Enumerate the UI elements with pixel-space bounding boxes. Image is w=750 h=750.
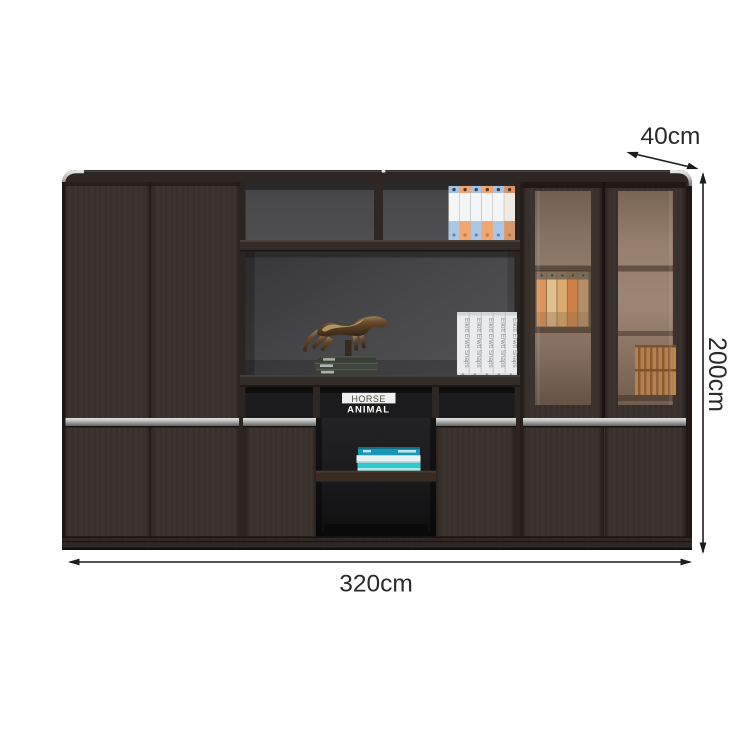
svg-text:Eliott Erwtt Snaps: Eliott Erwtt Snaps [487,318,494,368]
svg-text:40cm: 40cm [641,123,701,150]
svg-text:Eliott Erwtt Snaps: Eliott Erwtt Snaps [463,318,470,368]
svg-text:ANIMAL: ANIMAL [347,405,390,416]
svg-text:Eliott Erwtt Snaps: Eliott Erwtt Snaps [499,318,506,368]
svg-text:320cm: 320cm [339,571,413,598]
svg-text:Eliott Erwtt Snaps: Eliott Erwtt Snaps [511,318,518,368]
svg-text:Eliott Erwtt Snaps: Eliott Erwtt Snaps [475,318,482,368]
svg-text:HORSE: HORSE [351,394,386,404]
svg-text:200cm: 200cm [703,337,731,412]
